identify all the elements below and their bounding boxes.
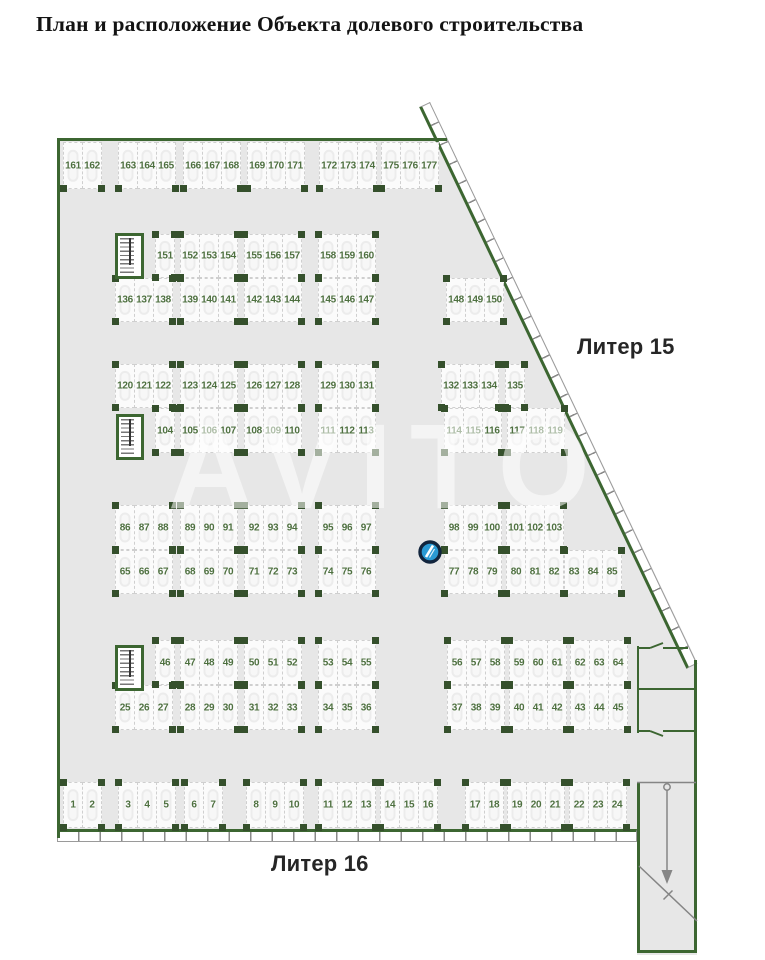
- spot-number: 110: [278, 425, 306, 436]
- spot-number: 16: [414, 800, 442, 811]
- parking-group: 136137138: [115, 278, 173, 322]
- structural-column: [503, 590, 510, 597]
- location-marker-icon: [416, 538, 444, 566]
- parking-spot-7: 7: [203, 782, 223, 828]
- structural-column: [561, 449, 568, 456]
- parking-spot-73: 73: [282, 550, 302, 594]
- parking-spot-67: 67: [153, 550, 173, 594]
- structural-column: [372, 726, 379, 733]
- structural-column: [441, 405, 448, 412]
- parking-spot-10: 10: [284, 782, 304, 828]
- parking-spot-162: 162: [82, 142, 102, 189]
- structural-column: [177, 590, 184, 597]
- structural-column: [112, 318, 119, 325]
- structural-column: [567, 637, 574, 644]
- parking-group: 129130131: [318, 364, 376, 408]
- spot-number: 119: [541, 425, 569, 436]
- structural-column: [567, 682, 574, 689]
- parking-group: 172173174: [319, 142, 377, 189]
- parking-group: 959697: [318, 505, 376, 550]
- parking-group: 345: [118, 782, 176, 828]
- spot-number: 52: [278, 657, 306, 668]
- parking-group: 192021: [507, 782, 565, 828]
- parking-spot-79: 79: [482, 550, 502, 594]
- spot-number: 151: [151, 251, 179, 262]
- spot-number: 46: [151, 657, 179, 668]
- spot-number: 2: [78, 800, 106, 811]
- structural-column: [438, 361, 445, 368]
- structural-column: [372, 318, 379, 325]
- spot-number: 5: [152, 800, 180, 811]
- structural-column: [177, 547, 184, 554]
- parking-spot-16: 16: [418, 782, 438, 828]
- structural-column: [172, 185, 179, 192]
- structural-column: [298, 231, 305, 238]
- structural-column: [566, 824, 573, 831]
- parking-spot-128: 128: [282, 364, 302, 408]
- parking-spot-151: 151: [155, 234, 175, 278]
- spot-number: 76: [352, 567, 380, 578]
- structural-column: [152, 449, 159, 456]
- structural-column: [243, 824, 250, 831]
- structural-column: [241, 502, 248, 509]
- parking-group: 135: [505, 364, 525, 408]
- parking-group: 155156157: [244, 234, 302, 278]
- structural-column: [177, 318, 184, 325]
- parking-group: 166167168: [183, 142, 241, 189]
- structural-column: [169, 547, 176, 554]
- spot-number: 131: [352, 381, 380, 392]
- structural-column: [567, 726, 574, 733]
- structural-column: [177, 637, 184, 644]
- parking-group: 282930: [180, 685, 238, 730]
- structural-column: [98, 779, 105, 786]
- parking-spot-122: 122: [153, 364, 173, 408]
- spot-number: 88: [149, 522, 177, 533]
- parking-spot-46: 46: [155, 640, 175, 685]
- structural-column: [152, 231, 159, 238]
- parking-group: 565758: [447, 640, 505, 685]
- parking-spot-138: 138: [153, 278, 173, 322]
- parking-group: 838485: [564, 550, 622, 594]
- structural-column: [316, 185, 323, 192]
- parking-spot-113: 113: [356, 408, 376, 453]
- spot-number: 125: [214, 381, 242, 392]
- parking-group: 373839: [447, 685, 505, 730]
- spot-number: 94: [278, 522, 306, 533]
- structural-column: [112, 726, 119, 733]
- structural-column: [115, 824, 122, 831]
- structural-column: [300, 779, 307, 786]
- structural-column: [435, 185, 442, 192]
- structural-column: [237, 185, 244, 192]
- spot-number: 138: [149, 295, 177, 306]
- structural-column: [372, 275, 379, 282]
- parking-group: 145146147: [318, 278, 376, 322]
- structural-column: [504, 405, 511, 412]
- structural-column: [234, 726, 241, 733]
- parking-spot-64: 64: [608, 640, 628, 685]
- spot-number: 134: [475, 381, 503, 392]
- structural-column: [521, 404, 528, 411]
- parking-spot-58: 58: [485, 640, 505, 685]
- structural-column: [180, 185, 187, 192]
- parking-group: 105106107: [180, 408, 238, 453]
- label-liter-15: Литер 15: [577, 334, 675, 360]
- structural-column: [241, 449, 248, 456]
- parking-spot-5: 5: [156, 782, 176, 828]
- spot-number: 135: [501, 381, 529, 392]
- structural-column: [234, 590, 241, 597]
- parking-spot-100: 100: [482, 505, 502, 550]
- structural-column: [177, 361, 184, 368]
- parking-spot-70: 70: [218, 550, 238, 594]
- structural-column: [241, 547, 248, 554]
- parking-spot-168: 168: [221, 142, 241, 189]
- spot-number: 157: [278, 251, 306, 262]
- structural-column: [152, 637, 159, 644]
- spot-number: 27: [149, 702, 177, 713]
- structural-column: [624, 682, 631, 689]
- stairwell-icon: [116, 414, 144, 460]
- structural-column: [177, 231, 184, 238]
- parking-spot-147: 147: [356, 278, 376, 322]
- parking-spot-76: 76: [356, 550, 376, 594]
- structural-column: [372, 502, 379, 509]
- parking-spot-85: 85: [602, 550, 622, 594]
- parking-spot-13: 13: [356, 782, 376, 828]
- structural-column: [300, 824, 307, 831]
- structural-column: [377, 824, 384, 831]
- structural-column: [234, 682, 241, 689]
- spot-number: 97: [352, 522, 380, 533]
- parking-group: 8910: [246, 782, 304, 828]
- structural-column: [623, 824, 630, 831]
- spot-number: 113: [352, 425, 380, 436]
- spot-number: 91: [214, 522, 242, 533]
- structural-column: [618, 547, 625, 554]
- structural-column: [495, 361, 502, 368]
- parking-spot-119: 119: [545, 408, 565, 453]
- parking-spot-27: 27: [153, 685, 173, 730]
- structural-column: [441, 449, 448, 456]
- parking-spot-33: 33: [282, 685, 302, 730]
- structural-column: [372, 361, 379, 368]
- spot-number: 116: [478, 425, 506, 436]
- parking-spot-88: 88: [153, 505, 173, 550]
- structural-column: [372, 547, 379, 554]
- structural-column: [315, 275, 322, 282]
- structural-column: [169, 318, 176, 325]
- parking-group: 108109110: [244, 408, 302, 453]
- parking-group: 142143144: [244, 278, 302, 322]
- structural-column: [177, 682, 184, 689]
- parking-spot-107: 107: [218, 408, 238, 453]
- structural-column: [298, 590, 305, 597]
- parking-spot-61: 61: [547, 640, 567, 685]
- parking-group: 139140141: [180, 278, 238, 322]
- structural-column: [234, 275, 241, 282]
- structural-column: [219, 824, 226, 831]
- spot-number: 107: [214, 425, 242, 436]
- structural-column: [177, 502, 184, 509]
- structural-column: [234, 318, 241, 325]
- parking-spot-104: 104: [155, 408, 175, 453]
- structural-column: [560, 502, 567, 509]
- spot-number: 10: [280, 800, 308, 811]
- parking-group: 505152: [244, 640, 302, 685]
- parking-spot-131: 131: [356, 364, 376, 408]
- parking-group: 808182: [506, 550, 564, 594]
- parking-group: 222324: [569, 782, 627, 828]
- spot-number: 36: [352, 702, 380, 713]
- parking-group: 686970: [180, 550, 238, 594]
- parking-spot-134: 134: [479, 364, 499, 408]
- spot-number: 177: [415, 160, 443, 171]
- structural-column: [441, 590, 448, 597]
- structural-column: [169, 275, 176, 282]
- structural-column: [506, 637, 513, 644]
- spot-number: 55: [352, 657, 380, 668]
- structural-column: [506, 682, 513, 689]
- spot-number: 150: [480, 295, 508, 306]
- structural-column: [169, 590, 176, 597]
- parking-group: 474849: [180, 640, 238, 685]
- structural-column: [444, 726, 451, 733]
- spot-number: 171: [281, 160, 309, 171]
- parking-spot-141: 141: [218, 278, 238, 322]
- spot-number: 73: [278, 567, 306, 578]
- spot-number: 128: [278, 381, 306, 392]
- parking-spot-36: 36: [356, 685, 376, 730]
- spot-number: 104: [151, 425, 179, 436]
- parking-spot-150: 150: [484, 278, 504, 322]
- parking-spot-42: 42: [547, 685, 567, 730]
- structural-column: [443, 318, 450, 325]
- parking-spot-39: 39: [485, 685, 505, 730]
- spot-number: 70: [214, 567, 242, 578]
- parking-group: 343536: [318, 685, 376, 730]
- page-title: План и расположение Объекта долевого стр…: [36, 12, 736, 37]
- label-liter-16: Литер 16: [271, 851, 369, 877]
- structural-column: [372, 682, 379, 689]
- parking-group: 152153154: [180, 234, 238, 278]
- parking-group: 169170171: [247, 142, 305, 189]
- structural-column: [315, 405, 322, 412]
- structural-column: [624, 637, 631, 644]
- parking-group: 1718: [465, 782, 504, 828]
- structural-column: [504, 824, 511, 831]
- parking-spot-160: 160: [356, 234, 376, 278]
- parking-spot-174: 174: [357, 142, 377, 189]
- structural-column: [177, 726, 184, 733]
- structural-column: [561, 405, 568, 412]
- parking-spot-18: 18: [484, 782, 504, 828]
- structural-column: [624, 726, 631, 733]
- structural-column: [234, 502, 241, 509]
- structural-column: [60, 824, 67, 831]
- structural-column: [561, 547, 568, 554]
- structural-column: [234, 637, 241, 644]
- structural-column: [315, 637, 322, 644]
- parking-group: 114115116: [444, 408, 502, 453]
- structural-column: [112, 547, 119, 554]
- spot-number: 160: [352, 251, 380, 262]
- parking-group: 104: [155, 408, 175, 453]
- structural-column: [462, 824, 469, 831]
- structural-column: [561, 590, 568, 597]
- structural-column: [112, 502, 119, 509]
- structural-column: [443, 275, 450, 282]
- parking-group: 101102103: [506, 505, 564, 550]
- parking-group: 141516: [380, 782, 438, 828]
- spot-number: 103: [540, 522, 568, 533]
- structural-column: [241, 275, 248, 282]
- parking-group: 535455: [318, 640, 376, 685]
- floor-plan-page: План и расположение Объекта долевого стр…: [0, 0, 765, 960]
- structural-column: [315, 318, 322, 325]
- structural-column: [234, 449, 241, 456]
- parking-spot-49: 49: [218, 640, 238, 685]
- structural-column: [181, 824, 188, 831]
- parking-spot-45: 45: [608, 685, 628, 730]
- structural-column: [372, 405, 379, 412]
- structural-column: [169, 726, 176, 733]
- parking-spot-110: 110: [282, 408, 302, 453]
- structural-column: [298, 405, 305, 412]
- structural-column: [444, 682, 451, 689]
- parking-group: 111213: [318, 782, 376, 828]
- spot-number: 7: [199, 800, 227, 811]
- structural-column: [115, 779, 122, 786]
- parking-group: 151: [155, 234, 175, 278]
- parking-spot-91: 91: [218, 505, 238, 550]
- parking-spot-52: 52: [282, 640, 302, 685]
- parking-group: 929394: [244, 505, 302, 550]
- structural-column: [444, 637, 451, 644]
- structural-column: [241, 318, 248, 325]
- structural-column: [181, 779, 188, 786]
- structural-column: [298, 502, 305, 509]
- structural-column: [177, 449, 184, 456]
- parking-group: 46: [155, 640, 175, 685]
- parking-group: 626364: [570, 640, 628, 685]
- stairwell-icon: [115, 645, 144, 691]
- spot-number: 165: [152, 160, 180, 171]
- structural-column: [298, 682, 305, 689]
- structural-column: [298, 361, 305, 368]
- structural-column: [441, 502, 448, 509]
- structural-column: [152, 681, 159, 688]
- structural-column: [502, 361, 509, 368]
- structural-column: [521, 361, 528, 368]
- structural-column: [298, 726, 305, 733]
- spot-number: 30: [214, 702, 242, 713]
- structural-column: [152, 405, 159, 412]
- spot-number: 168: [217, 160, 245, 171]
- structural-column: [112, 590, 119, 597]
- spot-number: 162: [78, 160, 106, 171]
- parking-group: 656667: [115, 550, 173, 594]
- parking-group: 868788: [115, 505, 173, 550]
- structural-column: [462, 779, 469, 786]
- structural-column: [112, 404, 119, 411]
- structural-column: [98, 185, 105, 192]
- structural-column: [372, 449, 379, 456]
- structural-column: [177, 275, 184, 282]
- parking-spot-21: 21: [545, 782, 565, 828]
- structural-column: [315, 824, 322, 831]
- parking-group: 175176177: [381, 142, 439, 189]
- stairwell-icon: [115, 233, 144, 279]
- structural-column: [298, 275, 305, 282]
- parking-spot-144: 144: [282, 278, 302, 322]
- spot-number: 64: [604, 657, 632, 668]
- parking-spot-94: 94: [282, 505, 302, 550]
- structural-column: [60, 779, 67, 786]
- structural-column: [152, 274, 159, 281]
- structural-column: [618, 590, 625, 597]
- spot-number: 45: [604, 702, 632, 713]
- structural-column: [377, 779, 384, 786]
- structural-column: [372, 637, 379, 644]
- parking-group: 126127128: [244, 364, 302, 408]
- parking-group: 123124125: [180, 364, 238, 408]
- parking-group: 747576: [318, 550, 376, 594]
- structural-column: [241, 682, 248, 689]
- parking-group: 67: [184, 782, 223, 828]
- parking-group: 161162: [63, 142, 102, 189]
- structural-column: [504, 449, 511, 456]
- structural-column: [177, 405, 184, 412]
- parking-group: 148149150: [446, 278, 504, 322]
- parking-spot-55: 55: [356, 640, 376, 685]
- structural-column: [504, 779, 511, 786]
- parking-group: 12: [63, 782, 102, 828]
- structural-column: [506, 726, 513, 733]
- spot-number: 49: [214, 657, 242, 668]
- parking-spot-2: 2: [82, 782, 102, 828]
- structural-column: [315, 726, 322, 733]
- parking-group: 9899100: [444, 505, 502, 550]
- structural-column: [315, 231, 322, 238]
- parking-spot-154: 154: [218, 234, 238, 278]
- spot-number: 147: [352, 295, 380, 306]
- structural-column: [500, 318, 507, 325]
- structural-column: [301, 185, 308, 192]
- spot-number: 144: [278, 295, 306, 306]
- structural-column: [315, 547, 322, 554]
- structural-column: [623, 779, 630, 786]
- structural-column: [241, 361, 248, 368]
- structural-column: [372, 231, 379, 238]
- parking-group: 120121122: [115, 364, 173, 408]
- parking-spot-24: 24: [607, 782, 627, 828]
- structural-column: [60, 185, 67, 192]
- parking-spot-165: 165: [156, 142, 176, 189]
- parking-spot-135: 135: [505, 364, 525, 408]
- parking-group: 111112113: [318, 408, 376, 453]
- structural-column: [169, 682, 176, 689]
- structural-column: [169, 361, 176, 368]
- parking-group: 132133134: [441, 364, 499, 408]
- structural-column: [241, 231, 248, 238]
- parking-spots-layer: 1611621631641651661671681691701711721731…: [0, 0, 765, 960]
- structural-column: [241, 405, 248, 412]
- structural-column: [234, 361, 241, 368]
- structural-column: [434, 779, 441, 786]
- parking-group: 434445: [570, 685, 628, 730]
